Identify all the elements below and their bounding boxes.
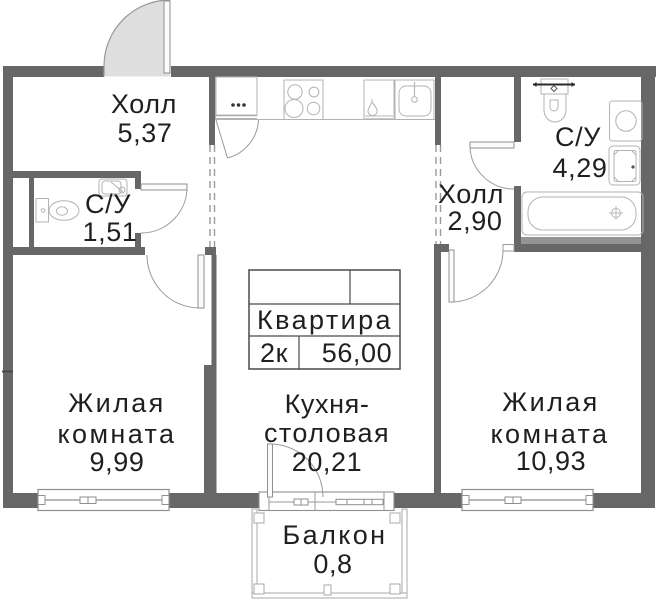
svg-text:столовая: столовая <box>264 418 390 448</box>
svg-text:4,29: 4,29 <box>553 153 608 183</box>
svg-text:С/У: С/У <box>85 189 131 219</box>
svg-text:1,51: 1,51 <box>83 217 138 247</box>
svg-text:комната: комната <box>58 419 177 449</box>
svg-text:56,00: 56,00 <box>322 338 393 368</box>
svg-text:5,37: 5,37 <box>118 118 173 148</box>
svg-text:Холл: Холл <box>438 179 504 209</box>
svg-text:комната: комната <box>491 419 610 449</box>
svg-text:Холл: Холл <box>111 89 177 119</box>
svg-text:2,90: 2,90 <box>448 206 503 236</box>
svg-text:0,8: 0,8 <box>313 549 352 579</box>
svg-text:Жилая: Жилая <box>502 387 599 417</box>
svg-text:Кухня-: Кухня- <box>285 389 370 419</box>
svg-text:Жилая: Жилая <box>68 388 165 418</box>
svg-text:С/У: С/У <box>555 122 601 152</box>
svg-text:9,99: 9,99 <box>90 447 145 477</box>
svg-text:2к: 2к <box>260 338 288 368</box>
svg-text:Балкон: Балкон <box>283 520 388 550</box>
svg-text:Квартира: Квартира <box>257 305 393 335</box>
svg-text:10,93: 10,93 <box>516 446 587 476</box>
svg-text:20,21: 20,21 <box>292 447 363 477</box>
